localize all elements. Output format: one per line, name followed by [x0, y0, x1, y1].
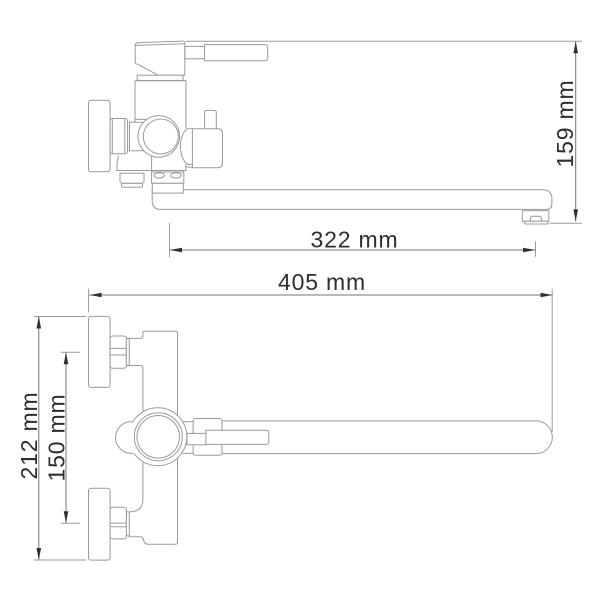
svg-text:150 mm: 150 mm: [44, 394, 70, 482]
svg-text:212 mm: 212 mm: [16, 392, 42, 480]
svg-text:322 mm: 322 mm: [311, 227, 399, 253]
svg-text:159 mm: 159 mm: [552, 80, 578, 168]
svg-text:405 mm: 405 mm: [278, 269, 366, 295]
